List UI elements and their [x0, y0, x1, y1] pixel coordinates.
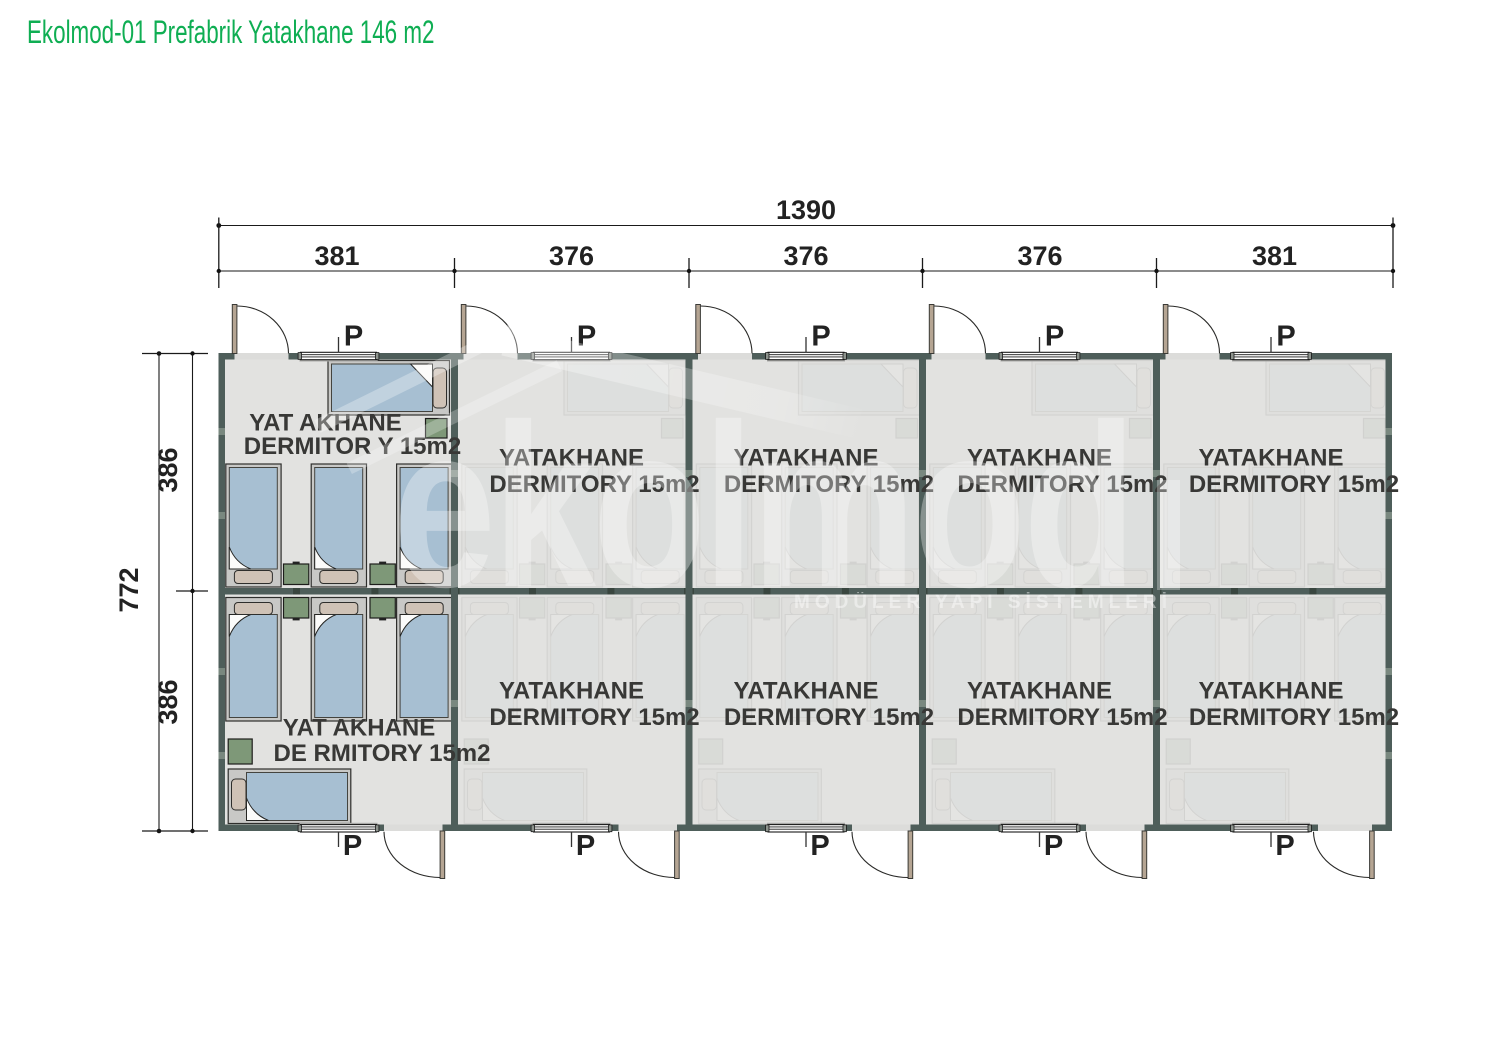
svg-text:P: P [1044, 830, 1063, 862]
svg-text:DERMITORY 15m2: DERMITORY 15m2 [1189, 471, 1399, 498]
svg-text:YATAKHANE: YATAKHANE [499, 678, 644, 705]
svg-text:Ekolmod-01 Prefabrik Yatakhane: Ekolmod-01 Prefabrik Yatakhane 146 m2 [27, 14, 434, 50]
svg-text:DE RMITORY 15m2: DE RMITORY 15m2 [274, 740, 491, 767]
svg-text:386: 386 [153, 679, 183, 724]
svg-text:P: P [1276, 321, 1295, 353]
svg-text:P: P [810, 830, 829, 862]
svg-text:1390: 1390 [776, 195, 836, 225]
svg-text:YAT AKHANE: YAT AKHANE [283, 715, 435, 742]
svg-text:381: 381 [1252, 241, 1297, 271]
svg-text:386: 386 [153, 447, 183, 492]
svg-text:YATAKHANE: YATAKHANE [1199, 678, 1344, 705]
svg-text:P: P [343, 830, 362, 862]
svg-text:DERMITORY 15m2: DERMITORY 15m2 [957, 704, 1167, 731]
svg-text:772: 772 [114, 567, 144, 612]
svg-text:P: P [576, 830, 595, 862]
svg-text:DERMITORY 15m2: DERMITORY 15m2 [1189, 704, 1399, 731]
svg-text:P: P [1045, 321, 1064, 353]
svg-text:YATAKHANE: YATAKHANE [967, 678, 1112, 705]
svg-text:YATAKHANE: YATAKHANE [734, 678, 879, 705]
svg-text:DERMITORY 15m2: DERMITORY 15m2 [489, 704, 699, 731]
svg-text:376: 376 [1017, 241, 1062, 271]
svg-text:YATAKHANE: YATAKHANE [1199, 445, 1344, 472]
svg-text:381: 381 [314, 241, 359, 271]
svg-text:DERMITORY 15m2: DERMITORY 15m2 [724, 704, 934, 731]
svg-text:376: 376 [549, 241, 594, 271]
svg-text:376: 376 [783, 241, 828, 271]
svg-text:P: P [344, 321, 363, 353]
svg-text:MODÜLER YAPI SİSTEMLERİ: MODÜLER YAPI SİSTEMLERİ [794, 592, 1172, 613]
svg-text:P: P [1275, 830, 1294, 862]
svg-text:P: P [811, 321, 830, 353]
